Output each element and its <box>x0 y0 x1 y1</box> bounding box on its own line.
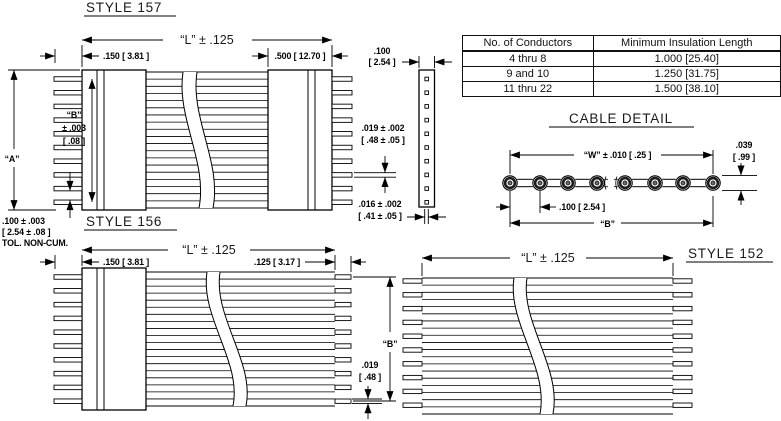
style156-strip-dim: .125 [ 3.17 ] <box>254 257 300 267</box>
drawing-linework: STYLE 157 STYLE 156 STYLE 152 CABLE DETA… <box>0 0 781 421</box>
svg-text:[ .48 ± .05 ]: [ .48 ± .05 ] <box>361 135 405 145</box>
svg-text:± .003: ± .003 <box>62 123 86 133</box>
style157-title: STYLE 157 <box>86 0 162 15</box>
style157-right-connector <box>268 70 332 210</box>
svg-text:[ .99 ]: [ .99 ] <box>733 152 755 162</box>
cable-height-dim: .039 <box>736 140 753 150</box>
svg-text:TOL. NON-CUM.: TOL. NON-CUM. <box>2 238 68 248</box>
style156-stripped-wire-ends <box>335 275 351 404</box>
cable-pitch-dim: .100 [ 2.54 ] <box>559 202 605 212</box>
style157-pin-width-dim: .016 ± .002 <box>359 199 402 209</box>
style157-left-width-dim: .150 [ 3.81 ] <box>103 51 149 61</box>
style156-length-dim: “L” ± .125 <box>182 243 235 257</box>
cable-width-dim: “W” ± .010 [ .25 ] <box>584 150 652 160</box>
svg-text:[ .08 ]: [ .08 ] <box>63 136 85 146</box>
style156-label-b: “B” <box>383 339 398 349</box>
cable-label-b: “B” <box>600 219 615 229</box>
cable-detail-title: CABLE DETAIL <box>569 111 673 126</box>
style157-thickness-dim: .100 <box>374 46 391 56</box>
style157-pin-thickness-dim: .019 ± .002 <box>362 123 405 133</box>
svg-text:[ 2.54 ± .08 ]: [ 2.54 ± .08 ] <box>2 227 51 237</box>
style157-right-width-dim: .500 [ 12.70 ] <box>275 51 326 61</box>
style157-length-dim: “L” ± .125 <box>180 33 233 47</box>
style152-title: STYLE 152 <box>688 246 764 261</box>
pin-pitch-dim: .100 ± .003 <box>2 216 45 226</box>
svg-text:[ .48 ]: [ .48 ] <box>359 372 381 382</box>
style156-left-width-dim: .150 [ 3.81 ] <box>103 257 149 267</box>
style152-right-wire-ends <box>673 279 692 408</box>
style157-label-a: “A” <box>5 154 20 164</box>
style157-right-pins <box>332 77 352 205</box>
style156-left-pins <box>54 275 82 404</box>
style156-wire-dim: .019 <box>362 360 379 370</box>
style156-title: STYLE 156 <box>86 214 162 229</box>
technical-drawing-sheet: No. of Conductors Minimum Insulation Len… <box>0 0 781 421</box>
cable-detail-conductors <box>503 176 720 190</box>
style152-length-dim: “L” ± .125 <box>521 251 574 265</box>
style152-left-wire-ends <box>403 279 422 408</box>
svg-text:[ 2.54 ]: [ 2.54 ] <box>368 57 395 67</box>
style157-label-b: “B” <box>67 110 82 120</box>
style156-left-connector <box>82 268 146 410</box>
svg-text:[ .41 ± .05 ]: [ .41 ± .05 ] <box>358 211 402 221</box>
